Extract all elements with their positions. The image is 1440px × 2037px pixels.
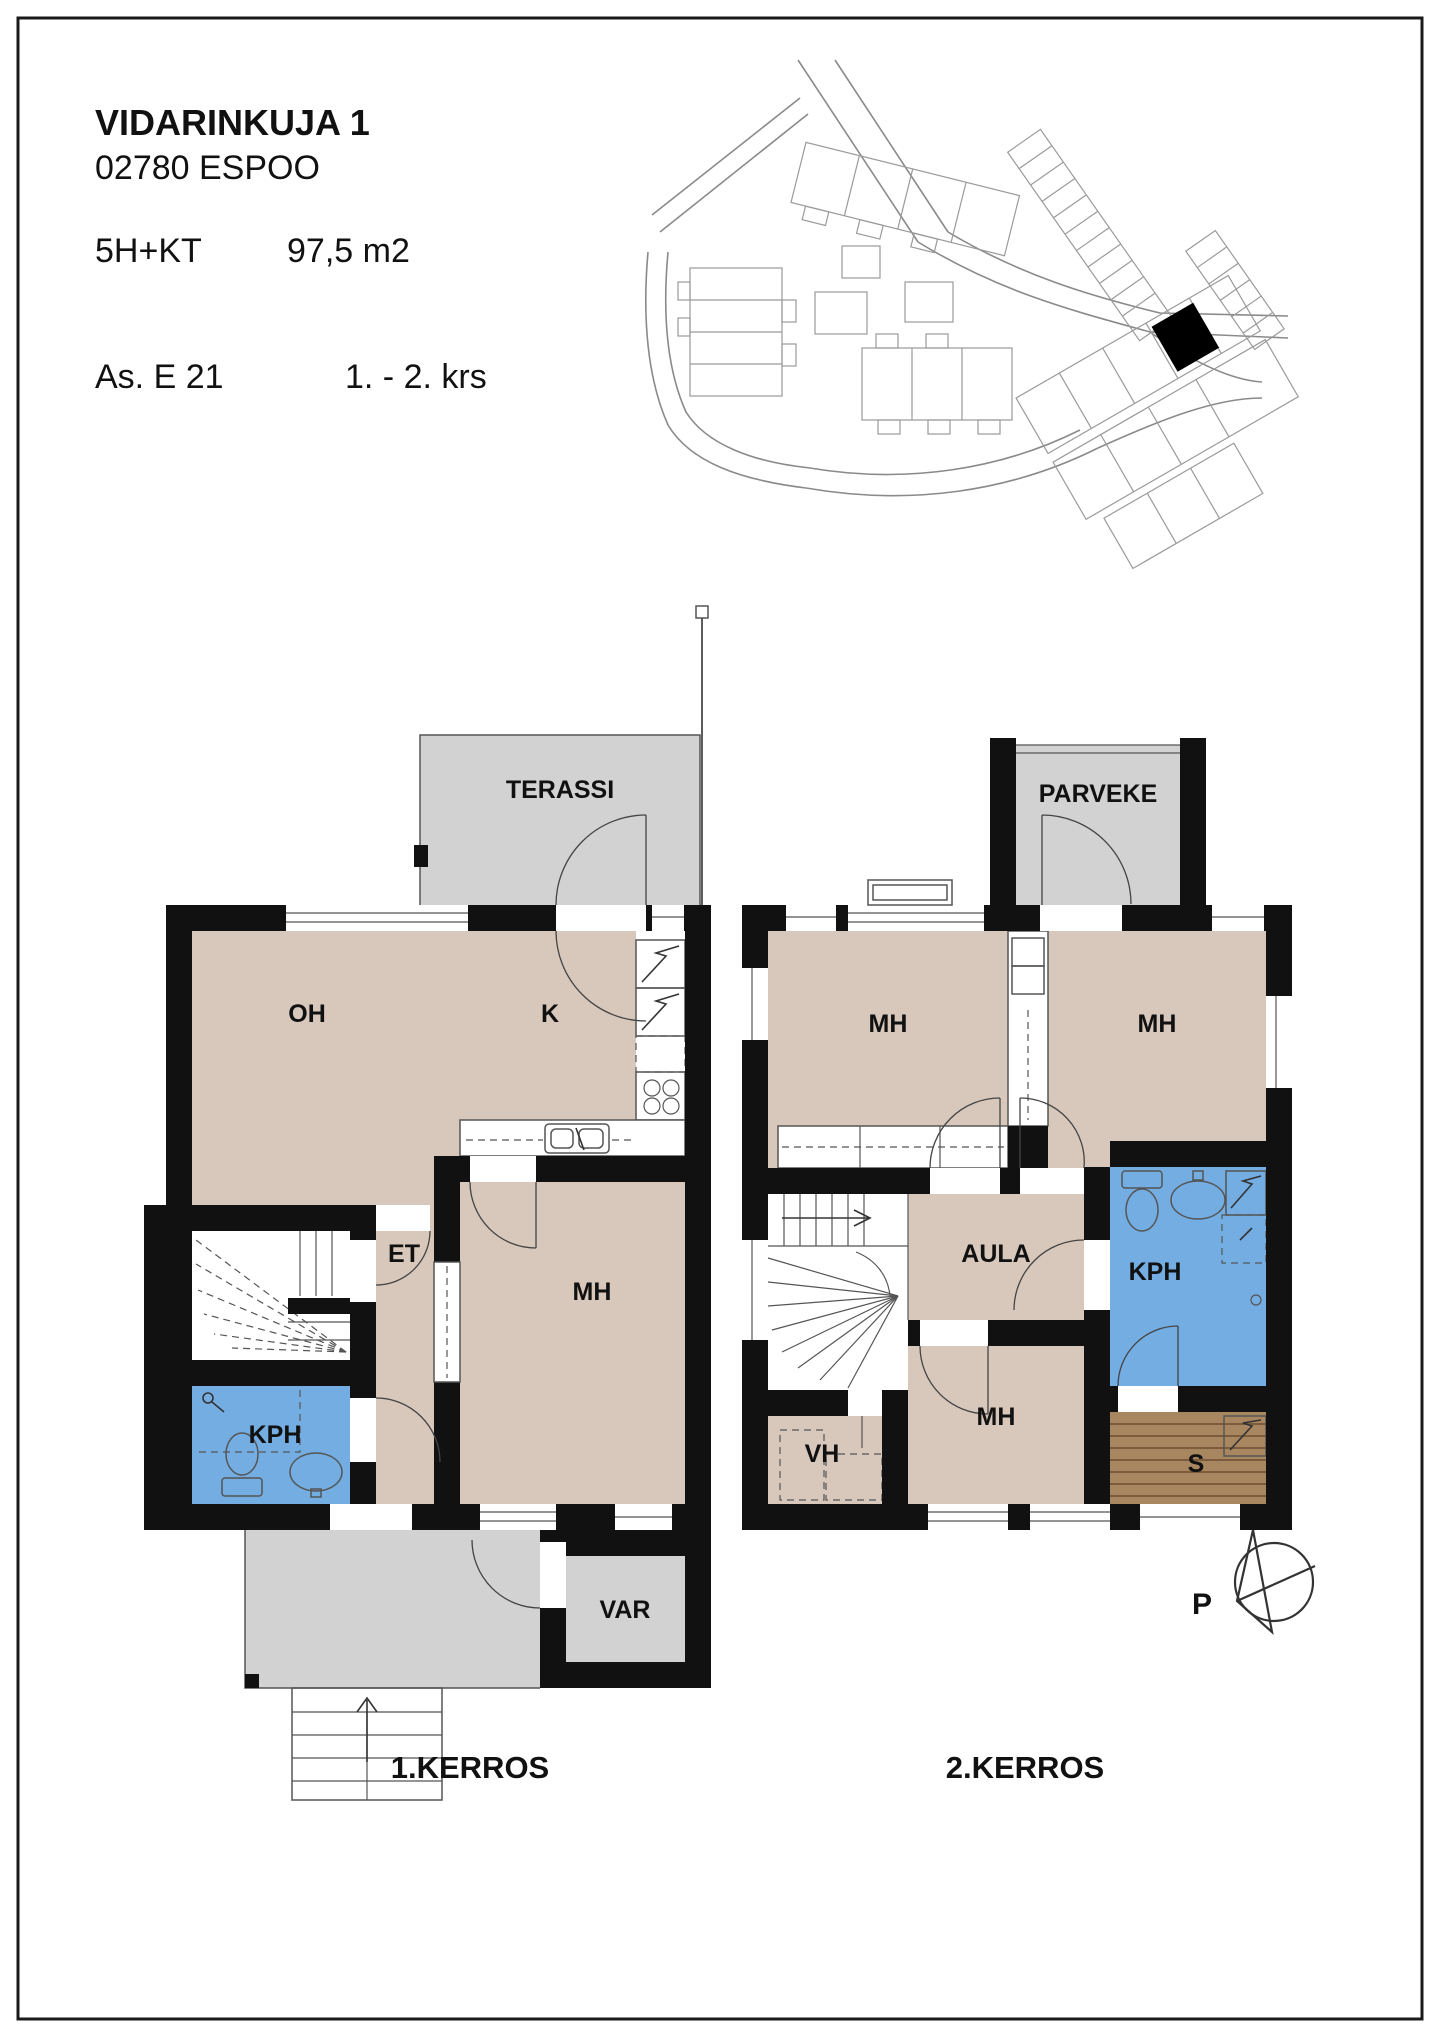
- north-label: P: [1192, 1588, 1212, 1621]
- postal-city: 02780 ESPOO: [95, 149, 320, 187]
- north-arrow-compass: P: [1192, 1530, 1315, 1632]
- room-label-s: S: [1188, 1450, 1205, 1478]
- room-label-mh-bottom: MH: [977, 1403, 1016, 1431]
- room-label-parveke: PARVEKE: [1039, 780, 1158, 808]
- room-label-mh-floor1: MH: [573, 1278, 612, 1306]
- room-label-mh-right: MH: [1138, 1010, 1177, 1038]
- floor-plan-drawing: VIDARINKUJA 1 02780 ESPOO 5H+KT 97,5 m2 …: [0, 0, 1440, 2037]
- floors-range: 1. - 2. krs: [345, 358, 487, 396]
- street-address: VIDARINKUJA 1: [95, 102, 370, 143]
- room-label-k: K: [541, 1000, 559, 1028]
- room-label-vh: VH: [805, 1440, 840, 1468]
- floor1-plan: TERASSI OH K ET MH KPH VAR 1.KERROS: [144, 606, 711, 1800]
- apartment-type: 5H+KT: [95, 232, 202, 270]
- floor2-caption: 2.KERROS: [946, 1750, 1104, 1785]
- room-label-terassi: TERASSI: [506, 776, 614, 804]
- floor-plan-sheet: VIDARINKUJA 1 02780 ESPOO 5H+KT 97,5 m2 …: [0, 0, 1440, 2037]
- room-label-mh-left: MH: [869, 1010, 908, 1038]
- floor2-balcony: [990, 738, 1206, 905]
- floor1-staircase: [192, 1231, 350, 1360]
- room-label-aula: AULA: [961, 1240, 1030, 1268]
- room-label-var: VAR: [600, 1596, 651, 1624]
- floor1-caption: 1.KERROS: [391, 1750, 549, 1785]
- room-label-kph-floor2: KPH: [1129, 1258, 1182, 1286]
- header-block: VIDARINKUJA 1 02780 ESPOO 5H+KT 97,5 m2 …: [95, 102, 487, 396]
- room-label-et: ET: [388, 1240, 420, 1268]
- floor2-staircase: [768, 1194, 908, 1390]
- site-plan-map: [646, 60, 1331, 576]
- floor1-terrace: [414, 606, 708, 905]
- room-label-oh: OH: [288, 1000, 326, 1028]
- apartment-area: 97,5 m2: [287, 232, 410, 270]
- floor2-plan: PARVEKE MH MH AULA KPH MH VH S 2.KERROS: [742, 738, 1292, 1785]
- floor1-entrance-porch: [245, 1530, 540, 1688]
- apartment-id: As. E 21: [95, 358, 224, 396]
- room-label-kph-floor1: KPH: [249, 1421, 302, 1449]
